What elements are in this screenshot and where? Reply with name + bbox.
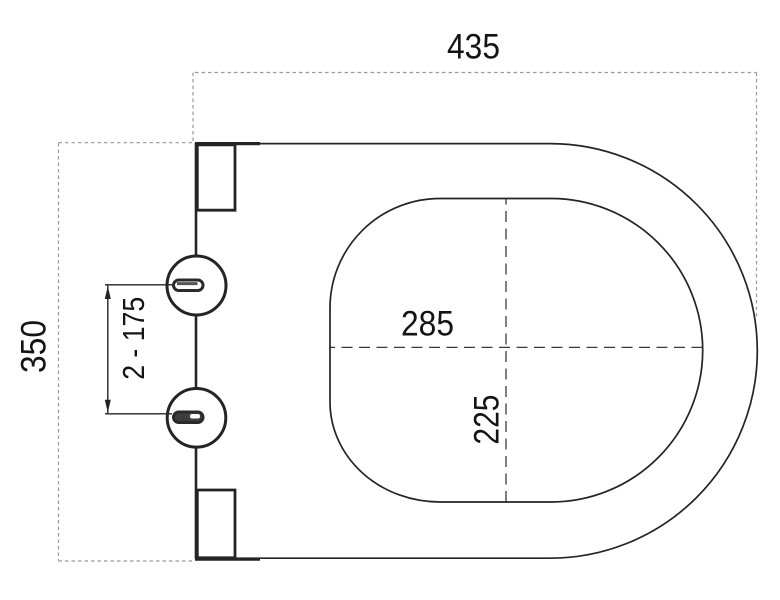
svg-text:2 - 175: 2 - 175 <box>116 297 151 380</box>
svg-text:285: 285 <box>401 305 454 344</box>
svg-text:435: 435 <box>447 28 500 67</box>
svg-text:350: 350 <box>15 320 54 373</box>
svg-text:225: 225 <box>468 395 507 445</box>
